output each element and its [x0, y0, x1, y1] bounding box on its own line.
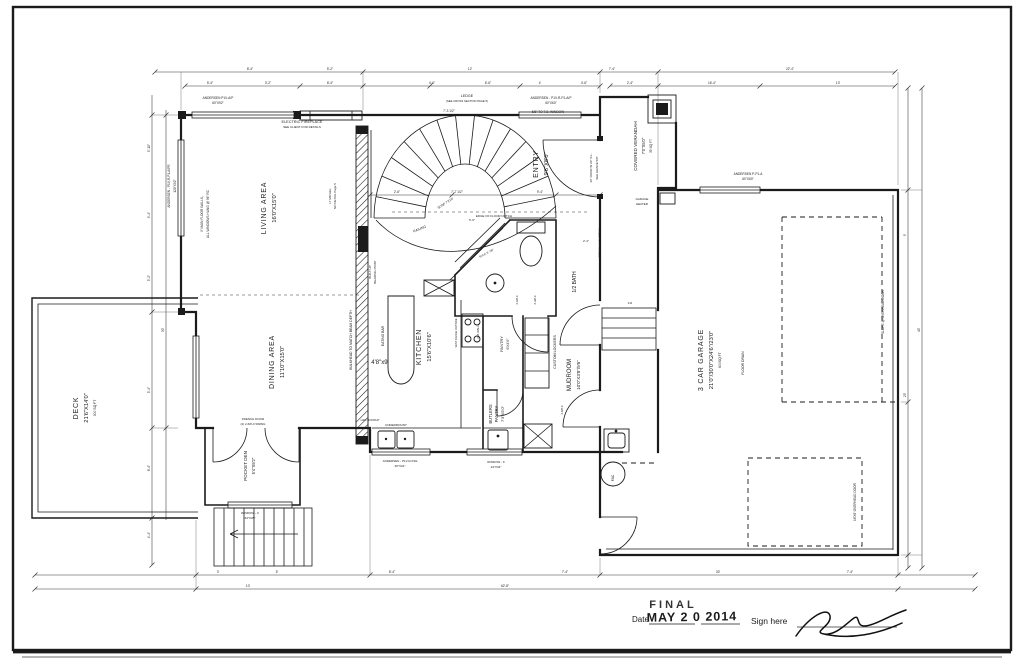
mudroom-bench	[524, 424, 552, 448]
label-butlers-pantry-2: PANTRY	[494, 405, 499, 422]
label-butlers-pantry-dims: 7'3"X5'0"	[500, 405, 505, 422]
garage-steps	[602, 308, 656, 350]
note-fac: FAC	[611, 474, 615, 481]
label-mudroom: MUDROOM	[567, 359, 573, 391]
label-pantry-dims: 6'X4'0"	[506, 338, 510, 350]
note-bearing-point: BUILT-UP	[368, 265, 372, 278]
note-lt-michel: LT MICHEL	[328, 188, 332, 204]
note-garage-heater-2: HEATER	[636, 202, 649, 206]
deck-stairs	[214, 508, 312, 566]
sign-here-label: Sign here	[751, 616, 788, 626]
dim-label: 62'-8"	[501, 584, 509, 588]
dim-label: 2'-6"	[394, 190, 400, 194]
plan-labels: LIVING AREA16'0"X15'0"DINING AREA11'10"X…	[73, 67, 921, 588]
label-living-area-dims: 16'0"X15'0"	[272, 193, 278, 223]
note-window-entry: ANDERSEN - P1V-R-P1-A/P	[531, 96, 572, 100]
label-entry: ENTRY	[533, 150, 540, 178]
dim-label: 4'-6"	[581, 81, 587, 85]
note-ledge-2: (SEE CROSS SECTION PAGE 5)	[446, 99, 488, 103]
note-garage-heater: GARAGE	[636, 197, 649, 201]
note-floor-drain: FLOOR DRAIN	[741, 351, 745, 375]
label-garage-area: 600SQ FT	[718, 352, 722, 368]
note-vent-range: VENT RANGE OUTSIDE	[454, 318, 458, 347]
dim-label: 5'	[276, 570, 279, 574]
dim-label: 7'-4"	[609, 67, 615, 71]
note-window-garage-2: 60"X60"	[742, 177, 753, 181]
appliance-cabinet	[424, 280, 454, 296]
label-dining-area-dims: 11'10"X15'0"	[280, 346, 286, 378]
label-mudroom-dims: 10'0"X3'8"/5'6"	[576, 360, 581, 390]
lockers	[525, 318, 549, 388]
dim-label: 13'	[836, 81, 841, 85]
label-garage: 3 CAR GARAGE	[698, 329, 705, 391]
note-window-kitchen: ANDERSEN - P1V-R-P1E	[383, 459, 418, 463]
note-window-left-2: 120"X92"	[173, 179, 177, 192]
note-undermount: UNDERMOUNT	[385, 423, 407, 427]
dim-label: 22'-4"	[786, 67, 794, 71]
dim-label: 7'-4"	[562, 570, 568, 574]
note-railing: RAILING	[413, 225, 427, 234]
label-eating-bar: EATING BAR	[381, 325, 385, 346]
dim-label: 4'	[539, 81, 542, 85]
dim-label: 7'-7 1/2"	[451, 190, 463, 194]
label-verandah-dims: 7'0"X5'0"	[641, 137, 646, 154]
note-french-door: FRENCH DOOR	[242, 417, 265, 421]
dim-label: 23'	[903, 393, 907, 398]
label-deck-dims: 21'6"X14'0"	[84, 393, 90, 423]
label-kitchen-dims: 15'6"X10'6"	[427, 332, 433, 362]
note-ledge: LEDGE	[461, 94, 474, 98]
note-lt-michel-2: NO DETAIL Page 5	[333, 183, 337, 209]
dim-label: 5'-2"	[147, 275, 151, 281]
scanned-floor-plan-page: LIVING AREA16'0"X15'0"DINING AREA11'10"X…	[0, 0, 1024, 660]
dim-label: 5'-4"	[207, 81, 213, 85]
dim-label: 5'-4"	[147, 387, 151, 393]
toilet	[517, 222, 545, 266]
note-window-head: 5/8" TO T.O. WINDOW	[532, 110, 564, 114]
dim-label: 30'	[716, 570, 721, 574]
label-custom-lockers: CUSTOM LOCKERS	[553, 335, 557, 369]
dim-label: 9'-4"	[147, 212, 151, 218]
note-window-c: WINDOW - C	[241, 511, 260, 515]
note-front-door: 36" DOOR W 20" S.L.	[589, 153, 593, 182]
note-h2o: H2O HOOKUP	[361, 418, 380, 422]
label-deck-area: 300 SQ FT	[93, 400, 97, 417]
dim-label: 2'-4"	[583, 239, 589, 243]
label-verandah-area: 35 SQ FT	[649, 139, 653, 153]
dim-label: 3'-2"	[265, 81, 271, 85]
note-overhead-door: 16'X8' OVERHEAD DOOR	[853, 482, 857, 521]
floor-plan-drawing: LIVING AREA16'0"X15'0"DINING AREA11'10"X…	[0, 0, 1024, 660]
note-bearing-point-2: BEARING POINT	[373, 260, 377, 284]
dim-label: 9'-4"	[537, 190, 543, 194]
verandah-post	[648, 95, 676, 123]
note-2x6-wall: 2X6 WALL	[476, 325, 480, 339]
hatched-wall	[356, 126, 368, 444]
note-wall-height: 9' MAIN FLOOR WALLS,	[200, 196, 204, 232]
approval-block: Date FINAL MAY 2 0 2014 Sign here	[632, 599, 906, 636]
dim-label: 2-6/8-0	[515, 295, 519, 304]
note-window-living: ANDERSEN P1V-A/P	[203, 96, 234, 100]
note-window-k-2: 24"X34"	[491, 465, 502, 469]
note-front-door-2: SEE GRADE 5/8"	[595, 156, 599, 180]
label-kitchen: KITCHEN	[416, 329, 423, 365]
label-entry-dims: 9'6"X8'0"	[544, 152, 550, 175]
label-butlers-pantry: BUTLERS	[488, 404, 493, 424]
note-electric-fireplace: ELECTRIC FIREPLACE	[282, 120, 323, 124]
label-half-bath: 1/2 BATH	[572, 271, 578, 293]
dim-label: 7'-4"	[847, 570, 853, 574]
label-dining-area: DINING AREA	[269, 335, 276, 389]
kitchen-sink	[378, 431, 414, 448]
note-window-c-2: 64"X28"	[245, 516, 256, 520]
note-window-k: WINDOW - K	[487, 460, 505, 464]
dim-label: 5'-6"	[469, 218, 475, 222]
dim-label: 8'-4"	[147, 465, 151, 471]
label-pocket-den: POCKET DEN	[243, 451, 248, 481]
dimension-lines	[33, 70, 978, 592]
dim-label: 4'-4"	[147, 532, 151, 538]
dim-label: 3'	[217, 570, 220, 574]
label-verandah: COVERED VERANDAH	[633, 121, 638, 171]
note-electric-fireplace-2: SEE CLIENT FOR DETAILS	[283, 125, 321, 129]
butlers-sink	[483, 428, 523, 450]
kitchen-island	[388, 296, 414, 384]
dim-label: 12'	[468, 67, 473, 71]
note-bulkhead: BULKHEAD TO MATCH BEAM DEPTH	[349, 310, 353, 370]
label-living-area: LIVING AREA	[261, 182, 268, 234]
date-stamp: MAY 2 0 2014	[647, 609, 738, 625]
note-floor-notch: EDGE OF FLOOR NOTCH	[476, 214, 512, 218]
signature	[796, 610, 906, 636]
dim-label: 8'-4"	[327, 81, 333, 85]
note-window-entry-2: 60"X60"	[545, 101, 556, 105]
garage-heater-unit	[660, 193, 675, 204]
label-pantry: PANTRY	[499, 336, 504, 352]
dim-label: 4'-6"	[429, 81, 435, 85]
note-window-kitchen-2: 60"X24"	[395, 464, 406, 468]
dim-label: 16'-4"	[708, 81, 716, 85]
label-pocket-den-dims: 5'4"X9'2"	[251, 457, 256, 474]
dim-label: 7'-3 1/2"	[443, 109, 455, 113]
note-window-garage: ANDERSEN P-P1-A	[734, 172, 764, 176]
dim-label: 6'-6"	[485, 81, 491, 85]
furnace	[601, 462, 625, 486]
note-wall-height-2: ALL WINDOWS HUNG @ 96" RC	[206, 189, 210, 238]
dim-label: 2-4/8-0	[533, 295, 537, 304]
label-island-dims: 4'8"x9'	[371, 360, 388, 366]
note-window-living-2: 60"X92"	[212, 101, 223, 105]
note-susp: SUSP 7'X10'	[437, 196, 455, 209]
dim-label: 8'-4"	[247, 67, 253, 71]
dim-label: 5'-2"	[327, 67, 333, 71]
note-french-door-2: (2) 2-6/8-0 SWING	[240, 422, 266, 426]
label-deck: DECK	[73, 397, 80, 420]
dim-label: 10'	[246, 584, 251, 588]
dim-label: 2'-4"	[627, 81, 633, 85]
note-slope-ohd: SLOPE @ OVERHEAD DOOR	[881, 289, 885, 334]
note-window-left: ANDERSEN - P1V-R-P1-A/PR	[167, 164, 171, 208]
windows	[178, 111, 760, 508]
dim-label: 5'-10"	[147, 144, 151, 152]
utility-sink	[604, 429, 629, 452]
dim-label: 3-R	[628, 301, 633, 305]
dim-label: 9'	[903, 233, 907, 236]
dim-label: 8'-4"	[389, 570, 395, 574]
dim-label: 30'	[161, 328, 165, 333]
curved-staircase	[371, 115, 556, 251]
dim-label: 40'	[917, 328, 921, 333]
note-lvl-beam: 13"WALL LVL BEAM	[598, 228, 602, 258]
label-garage-dims: 21'0"/30'0"X24'6"/23'0"	[709, 331, 715, 389]
dim-label: 2-8/8-0	[560, 405, 564, 414]
